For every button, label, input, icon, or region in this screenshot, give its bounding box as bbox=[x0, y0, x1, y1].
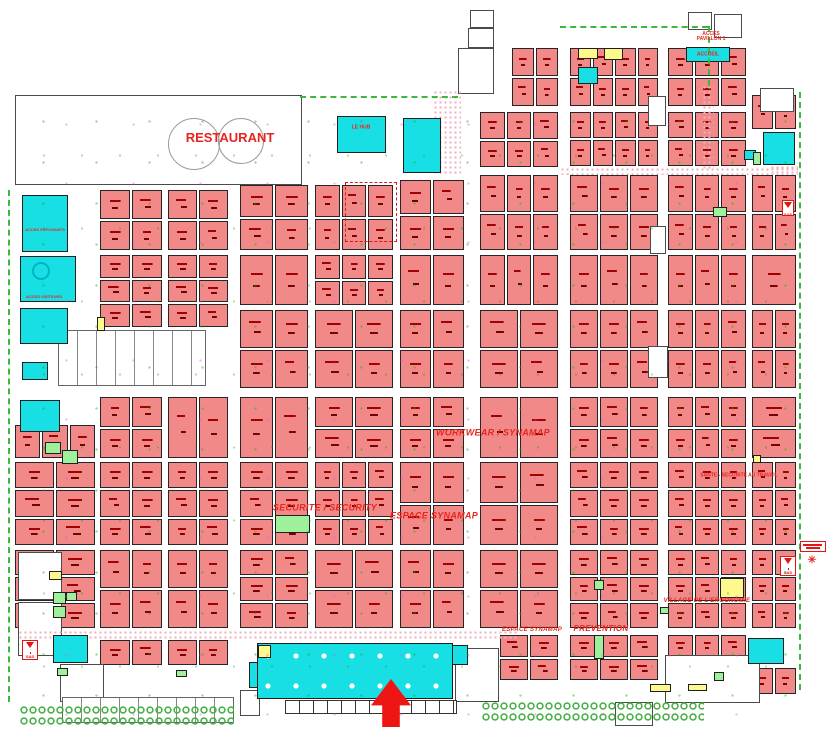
booth bbox=[199, 550, 228, 588]
booth bbox=[240, 185, 273, 217]
cyan-zone bbox=[20, 400, 60, 432]
booth bbox=[530, 659, 558, 681]
martini-glass-icon bbox=[784, 202, 792, 212]
booth bbox=[275, 310, 308, 348]
booth bbox=[695, 603, 720, 628]
booth bbox=[507, 175, 532, 212]
booth bbox=[721, 214, 746, 251]
booth bbox=[275, 350, 308, 388]
booth bbox=[600, 255, 628, 305]
booth bbox=[168, 550, 197, 588]
booth bbox=[775, 214, 796, 251]
booth bbox=[132, 490, 162, 516]
booth bbox=[752, 350, 773, 388]
booth bbox=[275, 577, 308, 602]
booth bbox=[275, 185, 308, 217]
booth bbox=[520, 462, 558, 503]
booth bbox=[240, 603, 273, 628]
walkway bbox=[18, 630, 518, 639]
booth bbox=[507, 255, 532, 305]
booth bbox=[570, 397, 598, 427]
booth bbox=[240, 255, 273, 305]
booth bbox=[600, 350, 628, 388]
cyan-zone bbox=[578, 67, 598, 84]
cyan-zone bbox=[22, 362, 48, 380]
booth bbox=[600, 490, 628, 516]
booth bbox=[695, 429, 720, 459]
zone-label-acces-visiteurs: ACCES VISITEURS bbox=[26, 295, 62, 299]
booth bbox=[480, 462, 518, 503]
booth bbox=[315, 519, 340, 545]
booth bbox=[570, 112, 591, 138]
booth bbox=[630, 550, 658, 575]
booth bbox=[668, 350, 693, 388]
booth bbox=[570, 350, 598, 388]
green-zone bbox=[275, 515, 310, 533]
booth bbox=[536, 48, 558, 76]
booth bbox=[168, 397, 197, 458]
booth bbox=[600, 462, 628, 488]
booth bbox=[775, 668, 796, 694]
zone-label-restaurant: RESTAURANT bbox=[186, 131, 275, 145]
building-structure bbox=[470, 10, 494, 28]
booth bbox=[433, 397, 464, 427]
yellow-zone bbox=[49, 571, 62, 580]
green-zone bbox=[53, 592, 66, 604]
booth bbox=[480, 550, 518, 588]
booth bbox=[275, 603, 308, 628]
booth bbox=[132, 550, 162, 588]
booth bbox=[695, 255, 720, 305]
booth bbox=[199, 255, 228, 278]
booth bbox=[570, 175, 598, 212]
booth bbox=[570, 462, 598, 488]
building-structure bbox=[665, 655, 760, 703]
aisle-dashed-line bbox=[8, 190, 10, 702]
booth bbox=[315, 397, 353, 427]
booth bbox=[56, 519, 95, 545]
booth bbox=[570, 429, 598, 459]
booth bbox=[600, 397, 628, 427]
booth bbox=[199, 590, 228, 628]
booth bbox=[533, 175, 558, 212]
booth bbox=[668, 397, 693, 427]
booth bbox=[240, 490, 273, 516]
booth bbox=[615, 78, 636, 106]
booth bbox=[752, 577, 773, 602]
booth bbox=[775, 519, 796, 545]
booth bbox=[315, 281, 340, 305]
booth bbox=[507, 214, 532, 251]
booth bbox=[368, 519, 393, 545]
booth bbox=[355, 310, 393, 348]
zone-label-acces-pavillon: ACCES PAVILLON 1 bbox=[697, 32, 726, 43]
booth bbox=[480, 141, 505, 168]
stall-row bbox=[285, 700, 457, 714]
booth bbox=[668, 490, 693, 516]
booth bbox=[533, 255, 558, 305]
booth bbox=[752, 214, 773, 251]
floor-plan-map: SASSASSASRESTAURANTACCES PAVILLON 1ACCUE… bbox=[0, 0, 840, 752]
booth bbox=[695, 490, 720, 516]
booth bbox=[368, 281, 393, 305]
booth bbox=[433, 180, 464, 214]
booth bbox=[132, 429, 162, 459]
booth bbox=[615, 140, 636, 166]
booth bbox=[132, 304, 162, 327]
green-zone bbox=[660, 607, 669, 614]
booth bbox=[530, 635, 558, 657]
cyan-zone bbox=[763, 132, 795, 165]
booth bbox=[721, 310, 746, 348]
green-zone bbox=[714, 672, 724, 681]
booth bbox=[536, 78, 558, 106]
booth bbox=[775, 603, 796, 628]
booth bbox=[355, 429, 393, 459]
floor-plan-page: SASSASSASRESTAURANTACCES PAVILLON 1ACCUE… bbox=[0, 0, 840, 752]
booth bbox=[132, 462, 162, 488]
booth bbox=[315, 429, 353, 459]
booth bbox=[570, 310, 598, 348]
booth bbox=[168, 462, 197, 488]
building-structure bbox=[468, 28, 494, 48]
green-zone bbox=[594, 635, 604, 659]
booth bbox=[100, 190, 130, 219]
booth bbox=[355, 550, 393, 588]
booth bbox=[638, 140, 659, 166]
booth bbox=[600, 214, 628, 251]
zone-label-securite: SECURITE / SECURITY bbox=[273, 503, 377, 512]
booth bbox=[199, 304, 228, 327]
aisle-chain bbox=[20, 706, 234, 715]
booth bbox=[570, 490, 598, 516]
booth bbox=[56, 462, 95, 488]
booth bbox=[600, 519, 628, 545]
booth bbox=[355, 397, 393, 427]
yellow-zone bbox=[650, 684, 671, 692]
walkway bbox=[702, 85, 714, 169]
yellow-zone bbox=[720, 578, 744, 598]
booth bbox=[668, 635, 693, 657]
building-structure bbox=[648, 346, 668, 378]
booth bbox=[533, 112, 558, 139]
yellow-zone bbox=[688, 684, 707, 691]
booth bbox=[315, 350, 353, 388]
booth bbox=[480, 214, 505, 251]
booth bbox=[600, 310, 628, 348]
booth bbox=[533, 141, 558, 168]
booth bbox=[400, 462, 431, 503]
booth bbox=[132, 640, 162, 665]
concourse bbox=[58, 330, 206, 386]
booth bbox=[520, 590, 558, 628]
booth bbox=[168, 190, 197, 219]
building-structure bbox=[760, 88, 794, 112]
green-zone bbox=[713, 207, 727, 217]
booth bbox=[342, 462, 367, 488]
booth bbox=[775, 310, 796, 348]
booth bbox=[721, 490, 746, 516]
booth bbox=[752, 519, 773, 545]
booth bbox=[168, 304, 197, 327]
aisle-chain bbox=[482, 702, 704, 711]
sas-label: SAS bbox=[784, 212, 792, 217]
booth bbox=[630, 603, 658, 628]
booth bbox=[752, 550, 773, 575]
aisle-dashed-line bbox=[560, 26, 708, 28]
booth bbox=[100, 550, 130, 588]
booth bbox=[240, 310, 273, 348]
booth bbox=[240, 397, 273, 458]
zone-label-sante-securite: SANTE - SECURITE AU TRAVAIL bbox=[700, 473, 777, 478]
booth bbox=[342, 255, 367, 279]
booth bbox=[570, 550, 598, 575]
le-hub-zone bbox=[337, 116, 386, 153]
yellow-zone bbox=[753, 455, 761, 463]
booth bbox=[668, 255, 693, 305]
booth bbox=[168, 221, 197, 250]
booth bbox=[400, 397, 431, 427]
booth bbox=[695, 397, 720, 427]
booth bbox=[168, 519, 197, 545]
booth bbox=[433, 590, 464, 628]
building-structure bbox=[648, 96, 666, 126]
booth bbox=[132, 590, 162, 628]
booth bbox=[630, 462, 658, 488]
booth bbox=[15, 519, 54, 545]
martini-glass-icon bbox=[26, 642, 34, 652]
booth bbox=[275, 397, 308, 458]
booth bbox=[132, 280, 162, 303]
booth bbox=[199, 490, 228, 516]
booth bbox=[695, 635, 720, 657]
booth bbox=[315, 462, 340, 488]
booth bbox=[433, 350, 464, 388]
walkway bbox=[770, 165, 798, 173]
booth bbox=[630, 429, 658, 459]
booth bbox=[240, 350, 273, 388]
booth bbox=[355, 350, 393, 388]
booth bbox=[480, 310, 518, 348]
booth bbox=[400, 429, 431, 459]
booth bbox=[752, 175, 773, 212]
booth bbox=[668, 550, 693, 575]
cyan-zone bbox=[53, 635, 88, 663]
booth bbox=[570, 659, 598, 681]
booth bbox=[630, 659, 658, 681]
booth bbox=[400, 180, 431, 214]
booth bbox=[132, 221, 162, 250]
zone-label-village-ergonomie: VILLAGE DE L'ERGONOMIE bbox=[664, 598, 751, 604]
booth bbox=[600, 550, 628, 575]
booth bbox=[168, 640, 197, 665]
booth bbox=[275, 219, 308, 251]
booth bbox=[721, 255, 746, 305]
booth bbox=[775, 350, 796, 388]
booth bbox=[630, 397, 658, 427]
booth bbox=[400, 255, 431, 305]
zone-label-prevention: PREVENTION bbox=[573, 625, 628, 633]
booth bbox=[668, 519, 693, 545]
booth bbox=[100, 519, 130, 545]
booth bbox=[480, 505, 518, 546]
booth bbox=[400, 310, 431, 348]
booth bbox=[100, 590, 130, 628]
walkway bbox=[560, 167, 798, 175]
sas-entrance: SAS bbox=[780, 556, 796, 576]
sas-entrance: SAS bbox=[22, 640, 38, 660]
booth bbox=[593, 112, 614, 138]
booth bbox=[600, 577, 628, 602]
aisle-chain bbox=[20, 717, 234, 726]
booth bbox=[368, 255, 393, 279]
plateau-tv-zone bbox=[403, 118, 441, 173]
zone-label-acces-exposants: ACCES EXPOSANTS bbox=[25, 228, 65, 232]
booth bbox=[400, 350, 431, 388]
booth bbox=[15, 462, 54, 488]
booth bbox=[721, 635, 746, 657]
acces-visiteurs-zone bbox=[20, 308, 68, 344]
booth bbox=[668, 175, 693, 212]
booth bbox=[275, 255, 308, 305]
zone-label-espace-synamap: ESPACE SYNAMAP bbox=[390, 511, 478, 520]
green-zone bbox=[594, 580, 604, 590]
booth bbox=[668, 140, 693, 166]
booth bbox=[480, 112, 505, 139]
green-zone bbox=[66, 592, 77, 601]
booth bbox=[512, 78, 534, 106]
booth bbox=[668, 603, 693, 628]
booth bbox=[752, 603, 773, 628]
booth bbox=[775, 490, 796, 516]
booth bbox=[15, 490, 54, 516]
booth bbox=[199, 462, 228, 488]
booth bbox=[500, 659, 528, 681]
booth bbox=[600, 429, 628, 459]
booth bbox=[775, 577, 796, 602]
yellow-zone bbox=[97, 317, 105, 331]
booth bbox=[168, 590, 197, 628]
aisle-dashed-line bbox=[300, 96, 458, 98]
booth bbox=[342, 281, 367, 305]
booth bbox=[721, 519, 746, 545]
booth bbox=[721, 603, 746, 628]
booth bbox=[400, 550, 431, 588]
booth bbox=[600, 175, 628, 212]
booth bbox=[199, 190, 228, 219]
acces-exposants-zone bbox=[22, 195, 68, 252]
booth bbox=[433, 216, 464, 250]
booth bbox=[600, 635, 628, 657]
booth bbox=[199, 280, 228, 303]
booth bbox=[668, 78, 693, 106]
booth bbox=[668, 112, 693, 138]
booth bbox=[570, 214, 598, 251]
red-note-tag bbox=[800, 541, 826, 552]
booth bbox=[615, 112, 636, 138]
booth bbox=[168, 280, 197, 303]
booth bbox=[275, 462, 308, 488]
booth bbox=[668, 310, 693, 348]
booth bbox=[480, 255, 505, 305]
flower-marker: ✳ bbox=[808, 556, 816, 567]
booth bbox=[315, 550, 353, 588]
booth bbox=[433, 462, 464, 503]
booth bbox=[240, 550, 273, 575]
circle-marker bbox=[32, 262, 50, 280]
booth bbox=[168, 490, 197, 516]
booth bbox=[570, 140, 591, 166]
booth bbox=[240, 577, 273, 602]
building-structure bbox=[458, 48, 494, 94]
booth bbox=[315, 310, 353, 348]
booth bbox=[100, 490, 130, 516]
entrance-plaza bbox=[452, 645, 468, 665]
booth bbox=[752, 429, 796, 459]
booth bbox=[315, 255, 340, 279]
booth bbox=[630, 255, 658, 305]
yellow-zone bbox=[604, 48, 623, 60]
green-zone bbox=[62, 450, 78, 464]
booth bbox=[520, 550, 558, 588]
booth bbox=[752, 255, 796, 305]
zone-label-espace-synamap-sud: ESPACE SYNAMAP bbox=[502, 627, 562, 633]
booth bbox=[355, 590, 393, 628]
booth bbox=[695, 550, 720, 575]
booth bbox=[752, 310, 773, 348]
booth bbox=[100, 640, 130, 665]
booth bbox=[132, 397, 162, 427]
booth bbox=[630, 490, 658, 516]
booth bbox=[520, 350, 558, 388]
green-zone bbox=[53, 606, 66, 618]
booth bbox=[695, 214, 720, 251]
booth bbox=[400, 590, 431, 628]
green-zone bbox=[57, 668, 68, 676]
booth bbox=[570, 255, 598, 305]
booth bbox=[752, 397, 796, 427]
green-zone bbox=[45, 442, 61, 454]
booth bbox=[775, 462, 796, 488]
booth bbox=[199, 519, 228, 545]
entrance-plaza bbox=[249, 662, 258, 688]
booth bbox=[56, 490, 95, 516]
booth bbox=[721, 112, 746, 138]
green-zone bbox=[753, 152, 761, 165]
booth bbox=[721, 140, 746, 166]
booth bbox=[132, 190, 162, 219]
booth bbox=[480, 590, 518, 628]
booth bbox=[132, 519, 162, 545]
booth bbox=[668, 462, 693, 488]
booth bbox=[100, 255, 130, 278]
cyan-zone bbox=[748, 638, 784, 664]
booth bbox=[132, 255, 162, 278]
booth bbox=[638, 48, 659, 76]
zone-label-le-hub: LE HUB bbox=[352, 125, 371, 130]
booth bbox=[600, 659, 628, 681]
booth bbox=[721, 397, 746, 427]
red-dashed-boundary bbox=[345, 182, 397, 242]
booth bbox=[100, 280, 130, 303]
booth bbox=[752, 490, 773, 516]
sas-entrance: SAS bbox=[782, 200, 794, 216]
booth bbox=[721, 350, 746, 388]
booth bbox=[240, 519, 273, 545]
sas-label: SAS bbox=[26, 654, 34, 659]
booth bbox=[433, 310, 464, 348]
zone-label-workwear-synamap: WORKWEAR / SYNAMAP bbox=[436, 428, 550, 437]
